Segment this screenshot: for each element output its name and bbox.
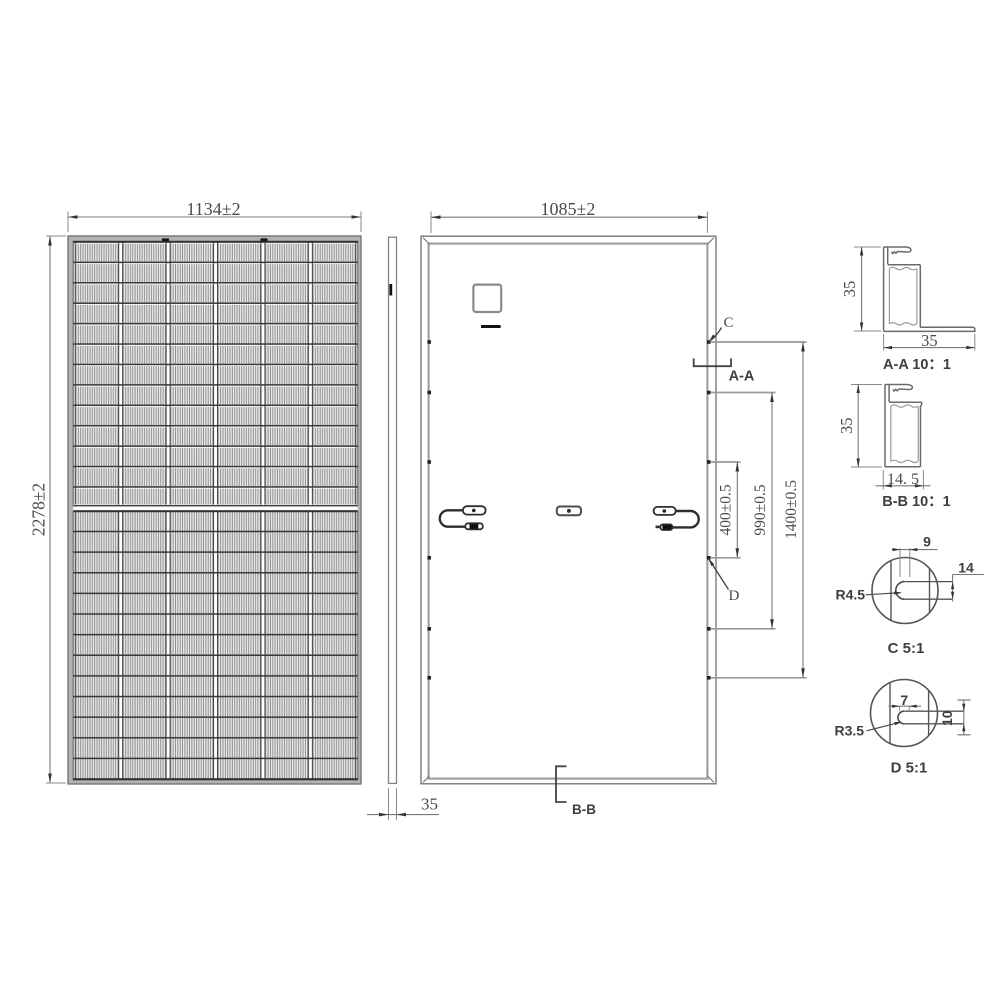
svg-text:14: 14 <box>958 560 974 576</box>
svg-text:14. 5: 14. 5 <box>887 471 919 488</box>
svg-text:1085±2: 1085±2 <box>541 199 596 219</box>
svg-text:R3.5: R3.5 <box>835 723 865 739</box>
svg-text:A-A 10：1: A-A 10：1 <box>883 357 951 373</box>
svg-text:990±0.5: 990±0.5 <box>752 484 769 535</box>
svg-text:R4.5: R4.5 <box>836 587 866 603</box>
svg-text:2278±2: 2278±2 <box>29 483 49 536</box>
svg-text:B-B 10：1: B-B 10：1 <box>882 494 951 510</box>
svg-text:D: D <box>729 588 740 604</box>
svg-text:C 5:1: C 5:1 <box>888 640 925 657</box>
svg-text:C: C <box>724 315 734 331</box>
svg-text:35: 35 <box>421 795 438 814</box>
svg-text:9: 9 <box>923 534 931 550</box>
svg-text:35: 35 <box>921 331 938 350</box>
svg-text:A-A: A-A <box>729 369 755 385</box>
svg-text:1400±0.5: 1400±0.5 <box>783 480 800 539</box>
svg-text:7: 7 <box>900 692 908 708</box>
svg-text:B-B: B-B <box>572 802 596 817</box>
svg-text:10: 10 <box>939 710 955 726</box>
svg-text:35: 35 <box>837 418 856 435</box>
svg-text:400±0.5: 400±0.5 <box>718 484 735 535</box>
svg-text:35: 35 <box>840 281 859 298</box>
svg-text:D 5:1: D 5:1 <box>891 760 928 777</box>
svg-text:1134±2: 1134±2 <box>186 199 240 219</box>
